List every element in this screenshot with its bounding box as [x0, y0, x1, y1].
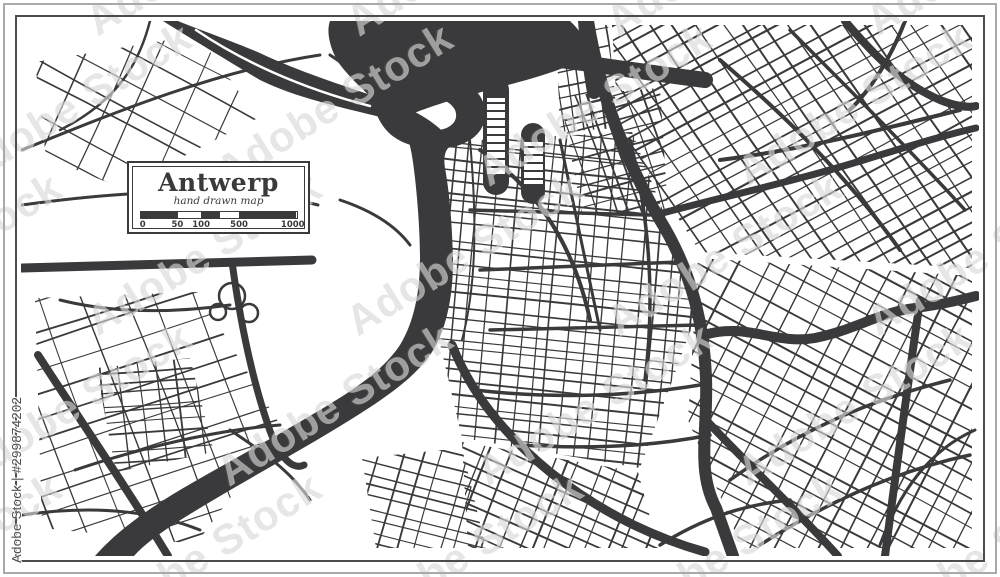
map-title-box-inner: Antwerp hand drawn map 0501005001000: [132, 166, 305, 229]
scale-label: 500: [230, 220, 248, 230]
scale-label: 100: [192, 220, 210, 230]
scale-label: 0: [140, 220, 146, 230]
map-title: Antwerp: [158, 170, 279, 196]
scale-label: 1000: [281, 220, 305, 230]
stock-map-image: Adobe StockAdobe StockAdobe StockAdobe S…: [0, 0, 1000, 577]
map-subtitle: hand drawn map: [174, 195, 264, 207]
scale-segment: [141, 212, 178, 218]
antwerp-street-map: [0, 0, 1000, 577]
scale-segment: [239, 212, 297, 218]
scale-bar: 0501005001000: [140, 211, 298, 231]
scale-segment: [201, 212, 220, 218]
scale-segment: [178, 212, 201, 218]
map-title-box: Antwerp hand drawn map 0501005001000: [127, 161, 310, 234]
adobe-stock-attribution: Adobe Stock | #299874202: [9, 397, 24, 563]
scale-bar-labels: 0501005001000: [140, 220, 298, 231]
scale-bar-segments: [140, 211, 298, 219]
scale-segment: [220, 212, 239, 218]
scale-label: 50: [171, 220, 183, 230]
